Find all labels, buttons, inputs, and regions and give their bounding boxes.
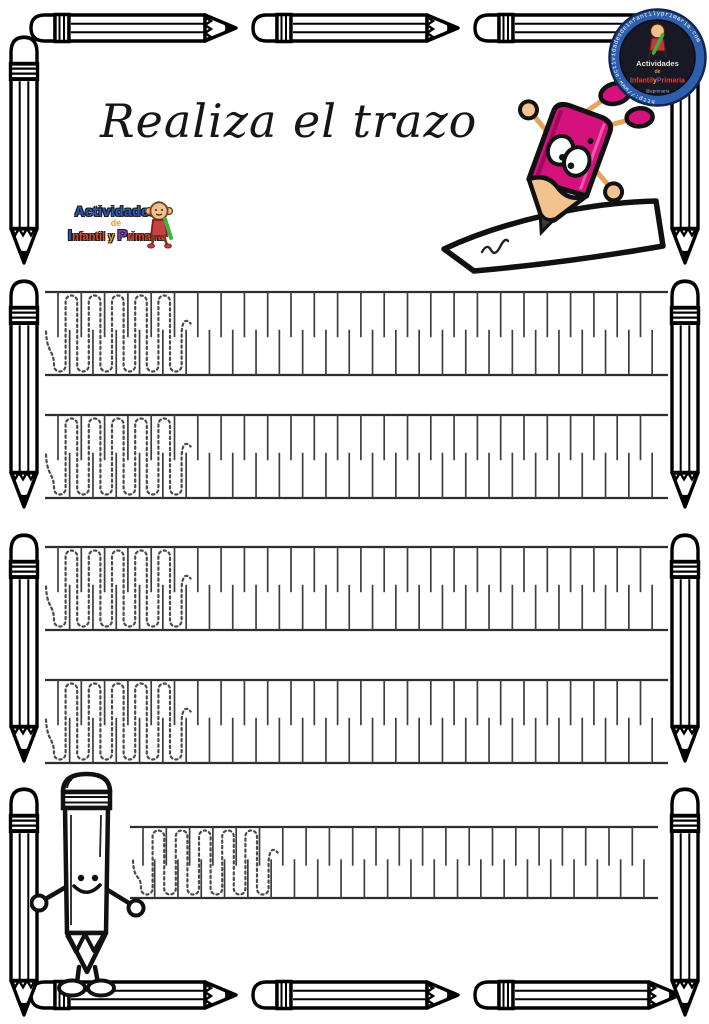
- page-title: Realiza el trazo: [100, 94, 477, 148]
- dotted-trace-wave: [46, 295, 191, 371]
- tracing-row: [45, 292, 668, 375]
- dotted-trace-wave: [46, 418, 191, 494]
- tracing-row: [45, 415, 668, 498]
- dotted-trace-wave: [46, 683, 191, 759]
- arm: [106, 889, 132, 905]
- ferrule: [63, 792, 110, 808]
- eraser: [63, 774, 110, 792]
- hair-tuft: [626, 107, 653, 127]
- hand: [32, 896, 47, 911]
- badge-actividades: Actividades: [636, 59, 679, 68]
- website-badge: http://www.actividadesdeinfantilyprimari…: [606, 6, 709, 109]
- tracing-row: [45, 547, 668, 630]
- logo-nfantil: nfantil: [72, 231, 105, 243]
- tracing-row: [45, 680, 668, 763]
- dotted-trace-wave: [46, 551, 191, 627]
- smiling-pencil-mascot-icon: [30, 765, 190, 1000]
- eye: [78, 875, 84, 881]
- logo-y: y: [108, 231, 114, 243]
- pink-pencil-mascot-icon: [430, 80, 685, 290]
- worksheet-page: Realiza el trazo Actividades de Infantil…: [0, 0, 709, 1024]
- tracing-row: [130, 827, 658, 898]
- badge-infantil-primaria: InfantilyPrimaria: [630, 78, 685, 85]
- badge-de: de: [655, 69, 661, 75]
- eye: [92, 875, 98, 881]
- foot: [88, 981, 114, 996]
- logo-cap-p: P: [117, 227, 127, 244]
- monkey-mascot-icon: [140, 200, 178, 250]
- hand: [129, 901, 144, 916]
- foot: [59, 981, 85, 996]
- badge-handle: @eprimaria: [646, 89, 670, 94]
